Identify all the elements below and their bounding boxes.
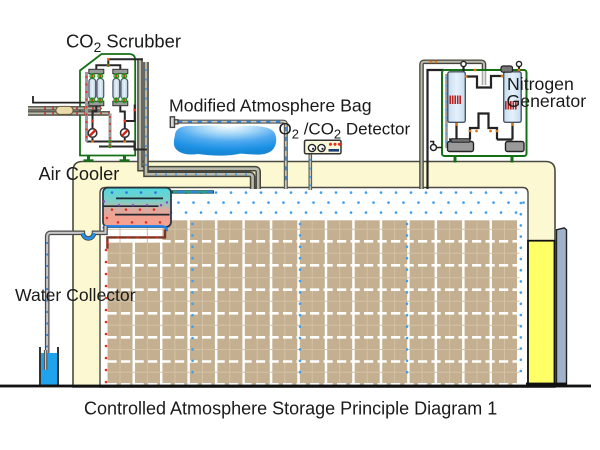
svg-text:O2 /CO2 Detector: O2 /CO2 Detector [279,120,411,142]
svg-text:Modified Atmosphere Bag: Modified Atmosphere Bag [169,96,372,116]
svg-text:Controlled Atmosphere Storage: Controlled Atmosphere Storage Principle … [84,399,497,419]
svg-text:Generator: Generator [507,91,587,111]
svg-text:CO2 Scrubber: CO2 Scrubber [66,31,181,56]
svg-text:Air Cooler: Air Cooler [39,164,120,184]
svg-text:Water Collector: Water Collector [15,285,136,305]
